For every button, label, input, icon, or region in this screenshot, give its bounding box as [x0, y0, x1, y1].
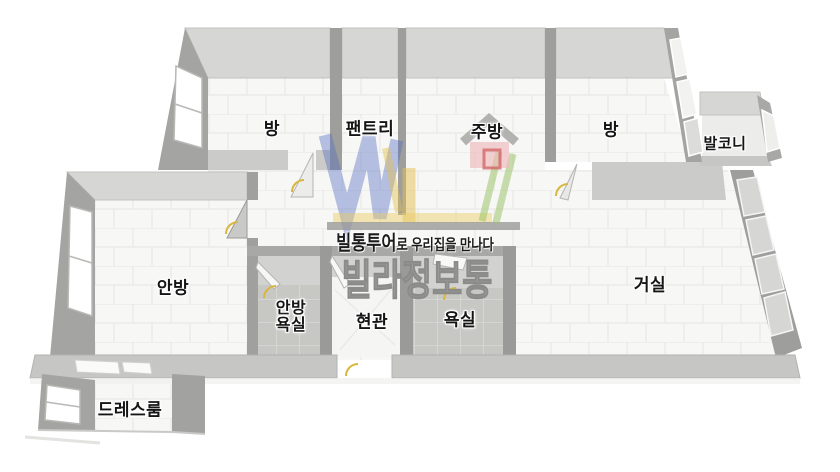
room-label-top-right: 방 [603, 116, 619, 141]
window-room-top-left [174, 66, 202, 148]
room-label-line2: 욕실 [276, 318, 306, 335]
window-sliver [122, 362, 152, 374]
room-label-line1: 안방 [276, 301, 306, 318]
room-label-entrance: 현관 [356, 308, 388, 333]
logo-house-body [470, 142, 509, 168]
wall-face [556, 28, 678, 78]
logo-underline-yellow [333, 213, 492, 223]
watermark-brand: 빌라정보통 [342, 247, 493, 308]
room-label-dress-room: 드레스룸 [98, 396, 163, 421]
window-sliver [75, 360, 120, 374]
door-swing-icon [346, 364, 358, 376]
wall-band [208, 150, 288, 170]
wall-face [185, 28, 330, 78]
floorplan-image: 방 팬트리 주방 방 발코니 안방 안방 욕실 현관 욕실 거실 드레스룸 빌통… [0, 0, 840, 472]
room-label-living-room: 거실 [634, 271, 666, 296]
room-label-master-bathroom: 안방 욕실 [276, 301, 306, 335]
bottom-wall [30, 355, 800, 384]
wall-face [406, 28, 545, 78]
room-label-top-left: 방 [264, 115, 280, 140]
wall [545, 28, 556, 162]
room-label-bathroom: 욕실 [444, 306, 476, 331]
balcony-south-band [700, 156, 772, 166]
wall [172, 374, 205, 434]
master-bedroom-wall-face [67, 172, 247, 200]
room-label-kitchen: 주방 [471, 118, 503, 143]
wall [247, 172, 258, 200]
wall [503, 246, 516, 357]
room-label-pantry: 팬트리 [346, 115, 394, 140]
ground-shadow [25, 437, 100, 443]
wall-shadow [30, 378, 800, 384]
room-top-right-floor [556, 78, 690, 162]
wall-band [592, 162, 726, 200]
wall-band [392, 355, 800, 378]
window-master-bedroom [68, 206, 92, 316]
room-label-master-bedroom: 안방 [157, 274, 189, 299]
room-label-balcony: 발코니 [704, 133, 747, 154]
wall-face [342, 28, 398, 78]
balcony-wall-face [700, 92, 764, 115]
